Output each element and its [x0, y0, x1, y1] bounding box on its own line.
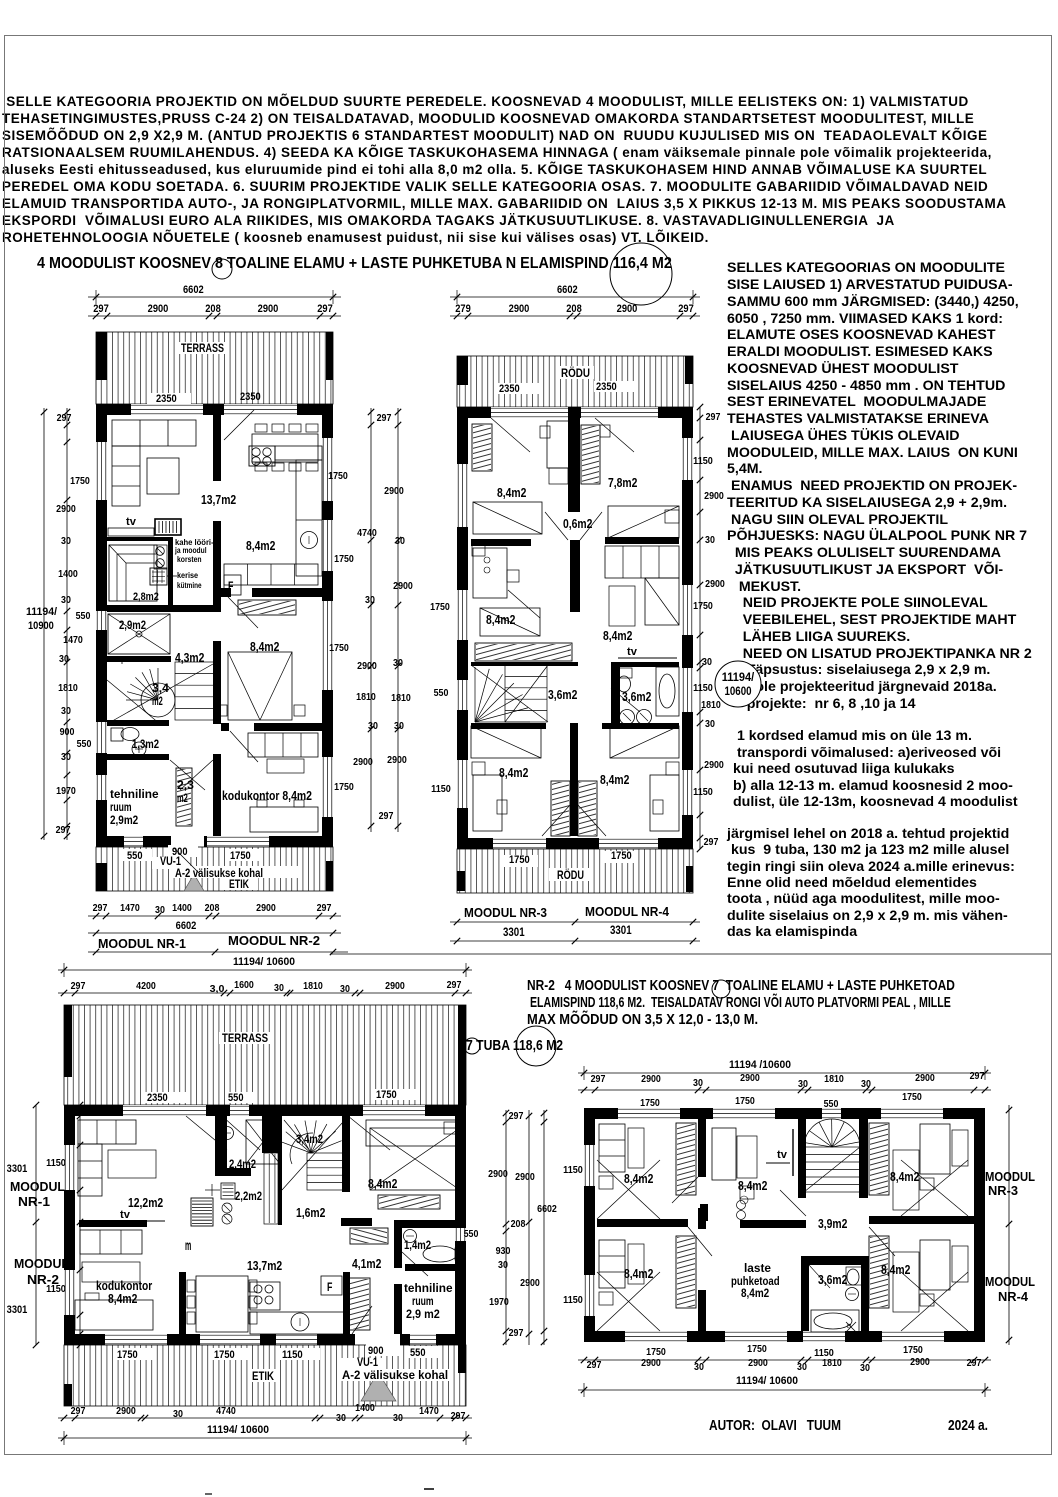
svg-text:8,4m2: 8,4m2 — [486, 613, 515, 627]
svg-text:30: 30 — [61, 751, 71, 763]
svg-text:297: 297 — [509, 1327, 524, 1339]
svg-text:MOODUL NR-4: MOODUL NR-4 — [585, 905, 669, 919]
svg-text:ja moodul: ja moodul — [174, 546, 206, 555]
svg-text:2,8m2: 2,8m2 — [133, 591, 159, 603]
svg-text:1750: 1750 — [903, 1344, 923, 1356]
svg-text:550: 550 — [410, 1347, 426, 1359]
svg-text:MOODUL NR-2: MOODUL NR-2 — [228, 934, 320, 948]
svg-text:297: 297 — [591, 1073, 606, 1085]
svg-text:tehniline: tehniline — [110, 787, 159, 801]
svg-text:2900: 2900 — [256, 902, 276, 914]
svg-text:550: 550 — [824, 1098, 839, 1110]
svg-text:1150: 1150 — [563, 1294, 583, 1306]
svg-text:TERRASS: TERRASS — [222, 1033, 268, 1045]
svg-text:kodukontor: kodukontor — [96, 1279, 152, 1293]
svg-text:208: 208 — [205, 303, 221, 315]
svg-text:297: 297 — [317, 303, 333, 315]
svg-text:MOODUL: MOODUL — [985, 1275, 1035, 1289]
svg-text:1150: 1150 — [46, 1157, 66, 1169]
svg-text:MOODUL NR-3: MOODUL NR-3 — [464, 906, 547, 920]
svg-text:30: 30 — [336, 1412, 346, 1424]
svg-text:2900: 2900 — [740, 1072, 760, 1084]
svg-text:30: 30 — [155, 904, 165, 916]
svg-text:30: 30 — [365, 594, 375, 606]
svg-text:11194/: 11194/ — [722, 672, 755, 684]
svg-text:kodukontor 8,4m2: kodukontor 8,4m2 — [222, 789, 312, 803]
svg-text:1750: 1750 — [329, 642, 349, 654]
svg-text:1750: 1750 — [117, 1349, 138, 1361]
svg-text:2350: 2350 — [499, 383, 520, 395]
svg-text:3,9m2: 3,9m2 — [818, 1217, 847, 1231]
svg-text:1750: 1750 — [430, 601, 450, 613]
svg-text:4,1m2: 4,1m2 — [352, 1257, 381, 1271]
svg-text:ETIK: ETIK — [252, 1369, 274, 1383]
svg-text:laste: laste — [744, 1261, 771, 1275]
svg-text:1810: 1810 — [822, 1357, 842, 1369]
svg-text:30: 30 — [61, 705, 71, 717]
svg-text:1750: 1750 — [214, 1349, 235, 1361]
svg-text:550: 550 — [127, 850, 143, 862]
svg-text:550: 550 — [76, 610, 91, 622]
svg-text:kütmine: kütmine — [177, 581, 202, 590]
svg-text:11194/ 10600: 11194/ 10600 — [207, 1424, 269, 1436]
svg-text:30: 30 — [394, 720, 404, 732]
svg-text:3,4m2: 3,4m2 — [296, 1134, 323, 1146]
svg-text:1150: 1150 — [693, 455, 713, 467]
svg-text:2900: 2900 — [910, 1356, 930, 1368]
svg-text:2900: 2900 — [385, 980, 405, 992]
svg-text:2,9m2: 2,9m2 — [119, 620, 146, 632]
svg-text:8,4m2: 8,4m2 — [741, 1286, 769, 1300]
svg-text:3301: 3301 — [503, 927, 525, 939]
svg-text:4740: 4740 — [357, 527, 377, 539]
svg-text:3,6m2: 3,6m2 — [818, 1273, 847, 1287]
svg-text:8,4m2: 8,4m2 — [499, 766, 528, 780]
svg-text:2900: 2900 — [515, 1171, 535, 1183]
svg-text:900: 900 — [60, 726, 75, 738]
svg-text:8,4m2: 8,4m2 — [624, 1172, 653, 1186]
svg-text:2900: 2900 — [509, 303, 530, 315]
svg-text:8,4m2: 8,4m2 — [881, 1263, 910, 1277]
svg-text:2900: 2900 — [704, 759, 724, 771]
svg-text:1150: 1150 — [693, 786, 713, 798]
svg-text:11194/ 10600: 11194/ 10600 — [736, 1375, 798, 1387]
svg-text:2900: 2900 — [148, 303, 169, 315]
svg-text:MOODUL: MOODUL — [985, 1170, 1035, 1184]
svg-text:2350: 2350 — [156, 393, 177, 405]
svg-text:tv: tv — [777, 1149, 788, 1161]
svg-text:10900: 10900 — [28, 620, 54, 632]
svg-text:30: 30 — [498, 1259, 508, 1271]
svg-text:4,3m2: 4,3m2 — [175, 651, 204, 665]
svg-text:1750: 1750 — [334, 553, 354, 565]
svg-text:30: 30 — [860, 1362, 870, 1374]
svg-text:297: 297 — [587, 1359, 602, 1371]
svg-text:m: m — [185, 1237, 191, 1253]
svg-text:7,8m2: 7,8m2 — [608, 476, 637, 490]
svg-text:8,4m2: 8,4m2 — [246, 539, 275, 553]
svg-text:3,0: 3,0 — [210, 983, 225, 995]
svg-text:30: 30 — [395, 535, 405, 547]
svg-text:2900: 2900 — [488, 1168, 508, 1180]
svg-text:3301: 3301 — [7, 1304, 28, 1316]
svg-text:A-2 välisukse kohal: A-2 välisukse kohal — [342, 1370, 448, 1382]
svg-text:RÖDU: RÖDU — [561, 367, 590, 380]
svg-text:NR-3: NR-3 — [988, 1184, 1018, 1198]
svg-text:13,7m2: 13,7m2 — [201, 493, 236, 507]
svg-text:30: 30 — [705, 718, 715, 730]
svg-text:2900: 2900 — [387, 754, 407, 766]
svg-text:8,4m2: 8,4m2 — [600, 773, 629, 787]
svg-text:kerise: kerise — [177, 571, 199, 580]
svg-text:tv: tv — [627, 646, 638, 658]
svg-text:30: 30 — [694, 1361, 704, 1373]
svg-text:930: 930 — [496, 1245, 511, 1257]
svg-text:1970: 1970 — [56, 785, 76, 797]
svg-text:11194/ 10600: 11194/ 10600 — [233, 956, 295, 968]
svg-text:2900: 2900 — [384, 485, 404, 497]
svg-text:12,2m2: 12,2m2 — [128, 1196, 163, 1210]
svg-text:2900: 2900 — [915, 1072, 935, 1084]
svg-text:2,9 m2: 2,9 m2 — [406, 1307, 440, 1321]
svg-text:1150: 1150 — [282, 1349, 303, 1361]
svg-text:550: 550 — [464, 1228, 479, 1240]
svg-text:1600: 1600 — [234, 979, 254, 991]
svg-text:MOODUL NR-1: MOODUL NR-1 — [98, 937, 186, 951]
svg-text:1810: 1810 — [58, 682, 78, 694]
svg-text:NR-1: NR-1 — [18, 1195, 50, 1209]
svg-text:6602: 6602 — [557, 284, 578, 296]
svg-text:4740: 4740 — [216, 1405, 236, 1417]
svg-text:297: 297 — [57, 412, 72, 424]
svg-text:8,4m2: 8,4m2 — [497, 486, 526, 500]
svg-text:1470: 1470 — [63, 634, 83, 646]
svg-text:1750: 1750 — [747, 1343, 767, 1355]
svg-text:30: 30 — [274, 982, 284, 994]
svg-text:ruum: ruum — [110, 800, 132, 814]
svg-text:2350: 2350 — [147, 1092, 168, 1104]
svg-text:297: 297 — [447, 979, 462, 991]
svg-text:2,4m2: 2,4m2 — [229, 1159, 256, 1171]
svg-text:1,3m2: 1,3m2 — [132, 739, 159, 751]
svg-text:1750: 1750 — [640, 1097, 660, 1109]
svg-text:1970: 1970 — [489, 1296, 509, 1308]
svg-text:208: 208 — [511, 1218, 526, 1230]
svg-text:30: 30 — [61, 535, 71, 547]
svg-text:1750: 1750 — [509, 854, 530, 866]
svg-text:550: 550 — [228, 1092, 244, 1104]
svg-text:2900: 2900 — [258, 303, 279, 315]
svg-text:RÖDU: RÖDU — [557, 869, 584, 882]
svg-text:8,4m2: 8,4m2 — [890, 1170, 919, 1184]
svg-text:MOODUL: MOODUL — [10, 1180, 65, 1194]
svg-text:2350: 2350 — [596, 381, 617, 393]
svg-text:1470: 1470 — [120, 902, 140, 914]
svg-text:1810: 1810 — [356, 691, 376, 703]
svg-text:1150: 1150 — [563, 1164, 583, 1176]
svg-text:2900: 2900 — [617, 303, 638, 315]
svg-text:8,4m2: 8,4m2 — [603, 629, 632, 643]
svg-text:VU-1: VU-1 — [160, 854, 181, 868]
svg-text:30: 30 — [59, 653, 69, 665]
svg-text:297: 297 — [317, 902, 332, 914]
svg-text:297: 297 — [379, 810, 394, 822]
svg-text:tv: tv — [126, 516, 137, 528]
svg-text:1750: 1750 — [735, 1095, 755, 1107]
svg-text:TERRASS: TERRASS — [181, 343, 224, 355]
svg-text:4200: 4200 — [136, 980, 156, 992]
svg-text:550: 550 — [77, 738, 92, 750]
svg-text:2900: 2900 — [520, 1277, 540, 1289]
svg-text:1470: 1470 — [419, 1405, 439, 1417]
svg-text:2900: 2900 — [357, 660, 377, 672]
svg-text:8,4m2: 8,4m2 — [368, 1177, 397, 1191]
svg-text:F: F — [327, 1280, 332, 1294]
svg-text:297: 297 — [509, 1110, 524, 1122]
svg-text:0,6m2: 0,6m2 — [563, 517, 592, 531]
svg-text:1400: 1400 — [58, 568, 78, 580]
svg-text:1810: 1810 — [824, 1073, 844, 1085]
svg-text:1810: 1810 — [303, 980, 323, 992]
svg-text:8,4m2: 8,4m2 — [624, 1267, 653, 1281]
svg-text:30: 30 — [61, 594, 71, 606]
svg-text:tehniline: tehniline — [404, 1281, 453, 1295]
svg-text:2900: 2900 — [393, 580, 413, 592]
svg-text:30: 30 — [702, 656, 712, 668]
svg-text:1750: 1750 — [334, 781, 354, 793]
svg-text:30: 30 — [173, 1408, 183, 1420]
svg-text:30: 30 — [705, 534, 715, 546]
svg-text:30: 30 — [368, 720, 378, 732]
svg-text:1750: 1750 — [902, 1091, 922, 1103]
svg-text:1,6m2: 1,6m2 — [296, 1206, 325, 1220]
svg-text:2900: 2900 — [704, 490, 724, 502]
svg-text:297: 297 — [56, 824, 71, 836]
svg-text:3301: 3301 — [610, 925, 632, 937]
svg-text:297: 297 — [706, 411, 721, 423]
svg-text:m2: m2 — [152, 694, 163, 708]
svg-text:2900: 2900 — [748, 1357, 768, 1369]
svg-text:ruum: ruum — [412, 1294, 434, 1308]
svg-text:3,6m2: 3,6m2 — [548, 688, 577, 702]
svg-text:297: 297 — [970, 1070, 985, 1082]
svg-text:6602: 6602 — [176, 920, 197, 932]
svg-text:1810: 1810 — [391, 692, 411, 704]
svg-text:1750: 1750 — [693, 600, 713, 612]
svg-text:2900: 2900 — [705, 578, 725, 590]
svg-text:279: 279 — [455, 303, 471, 315]
svg-text:1400: 1400 — [172, 902, 192, 914]
svg-text:1400: 1400 — [355, 1402, 375, 1414]
svg-text:30: 30 — [393, 1412, 403, 1424]
svg-text:F: F — [228, 579, 233, 593]
svg-text:2900: 2900 — [641, 1073, 661, 1085]
svg-text:208: 208 — [566, 303, 582, 315]
svg-text:11194 /10600: 11194 /10600 — [729, 1059, 791, 1071]
svg-text:297: 297 — [71, 980, 86, 992]
svg-text:297: 297 — [678, 303, 694, 315]
svg-text:208: 208 — [205, 902, 220, 914]
svg-text:2350: 2350 — [240, 391, 261, 403]
svg-text:13,7m2: 13,7m2 — [247, 1259, 282, 1273]
svg-text:tv: tv — [120, 1209, 131, 1221]
svg-text:297: 297 — [93, 303, 109, 315]
svg-text:2900: 2900 — [116, 1405, 136, 1417]
svg-text:1750: 1750 — [70, 475, 90, 487]
svg-text:297: 297 — [704, 836, 719, 848]
svg-text:2,2m2: 2,2m2 — [235, 1191, 262, 1203]
svg-text:297: 297 — [93, 902, 108, 914]
svg-text:1750: 1750 — [611, 850, 632, 862]
svg-text:MOODUL: MOODUL — [14, 1257, 69, 1271]
svg-text:1150: 1150 — [431, 783, 451, 795]
svg-text:A-2 välisukse kohal: A-2 välisukse kohal — [175, 868, 263, 880]
svg-text:1150: 1150 — [46, 1283, 66, 1295]
svg-text:8,4m2: 8,4m2 — [738, 1179, 767, 1193]
svg-text:2,9m2: 2,9m2 — [110, 813, 138, 827]
svg-text:30: 30 — [693, 1077, 703, 1089]
svg-text:30: 30 — [797, 1361, 807, 1373]
svg-text:2900: 2900 — [56, 503, 76, 515]
svg-text:30: 30 — [798, 1078, 808, 1090]
svg-text:NR-4: NR-4 — [998, 1290, 1028, 1304]
svg-text:30: 30 — [393, 657, 403, 669]
svg-text:550: 550 — [434, 687, 449, 699]
svg-text:10600: 10600 — [725, 686, 752, 698]
svg-text:297: 297 — [967, 1357, 982, 1369]
svg-text:3,6m2: 3,6m2 — [622, 690, 651, 704]
svg-text:297: 297 — [71, 1405, 86, 1417]
svg-text:1750: 1750 — [376, 1089, 397, 1101]
svg-text:3,4: 3,4 — [152, 681, 169, 695]
svg-text:1750: 1750 — [230, 850, 251, 862]
svg-text:8,4m2: 8,4m2 — [108, 1292, 137, 1306]
svg-text:VU-1: VU-1 — [357, 1355, 378, 1369]
svg-text:2900: 2900 — [353, 756, 373, 768]
svg-text:297: 297 — [377, 412, 392, 424]
svg-text:ETIK: ETIK — [229, 877, 249, 891]
svg-text:6602: 6602 — [183, 284, 204, 296]
svg-text:1750: 1750 — [328, 470, 348, 482]
svg-text:6602: 6602 — [537, 1203, 557, 1215]
svg-text:30: 30 — [340, 983, 350, 995]
svg-text:1810: 1810 — [701, 699, 721, 711]
svg-text:2900: 2900 — [641, 1357, 661, 1369]
svg-text:1150: 1150 — [693, 682, 713, 694]
svg-text:korsten: korsten — [177, 555, 202, 564]
svg-text:11194/: 11194/ — [26, 606, 57, 618]
svg-text:30: 30 — [861, 1078, 871, 1090]
svg-text:3301: 3301 — [7, 1163, 28, 1175]
svg-text:297: 297 — [451, 1410, 466, 1422]
